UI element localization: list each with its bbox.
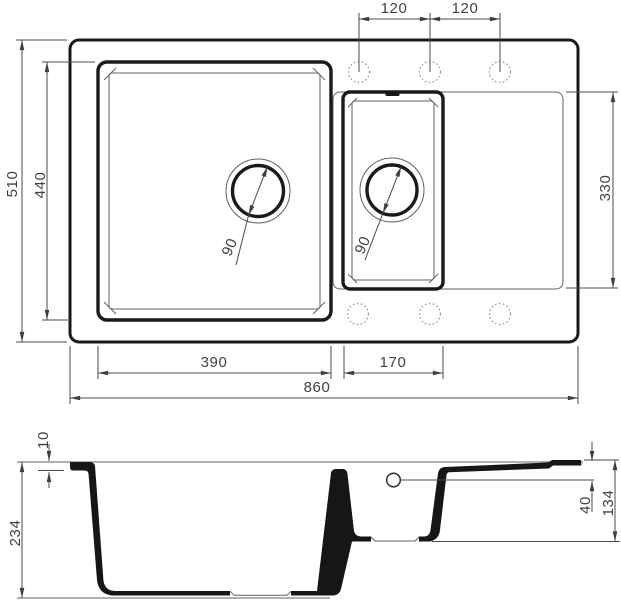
label-main-bowl-depth: 440 [32, 172, 49, 199]
half-bowl: 90 [343, 91, 443, 290]
drawing-canvas: 90 90 [0, 0, 621, 600]
label-overall-depth: 510 [4, 171, 21, 198]
main-bowl-rim [98, 62, 331, 320]
section-view: 10 234 40 134 [7, 431, 620, 598]
section-drainboard-profile [419, 460, 582, 542]
sink-outline [70, 40, 578, 342]
main-bowl-bevel-bl [104, 302, 116, 314]
main-drain-diameter-leader [236, 215, 249, 265]
label-rim-thickness: 10 [35, 431, 52, 449]
main-bowl-inner-edge [109, 73, 320, 309]
top-view: 90 90 [4, 0, 618, 404]
label-main-bowl-width: 390 [201, 354, 228, 371]
half-bowl-overflow-slot [386, 91, 400, 97]
label-half-bowl-depth: 134 [600, 490, 617, 517]
faucet-hole-bottom-1 [348, 304, 369, 325]
main-drain-diameter-arrow [249, 167, 268, 215]
half-bowl-rim [343, 92, 443, 289]
overflow-hole [387, 473, 401, 487]
sink-technical-drawing: 90 90 [0, 0, 621, 600]
section-divider-profile [291, 469, 371, 596]
faucet-hole-bottom-3 [490, 304, 511, 325]
half-drain-diameter-label: 90 [351, 234, 374, 257]
main-drain-diameter-label: 90 [218, 236, 241, 259]
section-main-bowl-profile [70, 462, 230, 596]
section-main-drain-recess [230, 591, 291, 595]
label-hole-spacing-right: 120 [452, 0, 479, 17]
main-bowl-bevel-tl [104, 68, 116, 80]
label-half-bowl-width: 170 [380, 354, 407, 371]
label-drainboard-drop: 40 [577, 496, 594, 514]
label-hole-spacing-left: 120 [381, 0, 408, 17]
main-bowl: 90 [98, 62, 331, 320]
label-overall-width: 860 [304, 379, 331, 396]
main-bowl-bevel-tr [313, 68, 325, 80]
half-drain-diameter-arrow [383, 167, 401, 214]
section-half-drain-recess [371, 537, 419, 541]
label-total-depth: 234 [7, 520, 24, 547]
label-right-area-depth: 330 [597, 175, 614, 202]
faucet-hole-bottom-2 [420, 304, 441, 325]
main-bowl-bevel-br [313, 302, 325, 314]
